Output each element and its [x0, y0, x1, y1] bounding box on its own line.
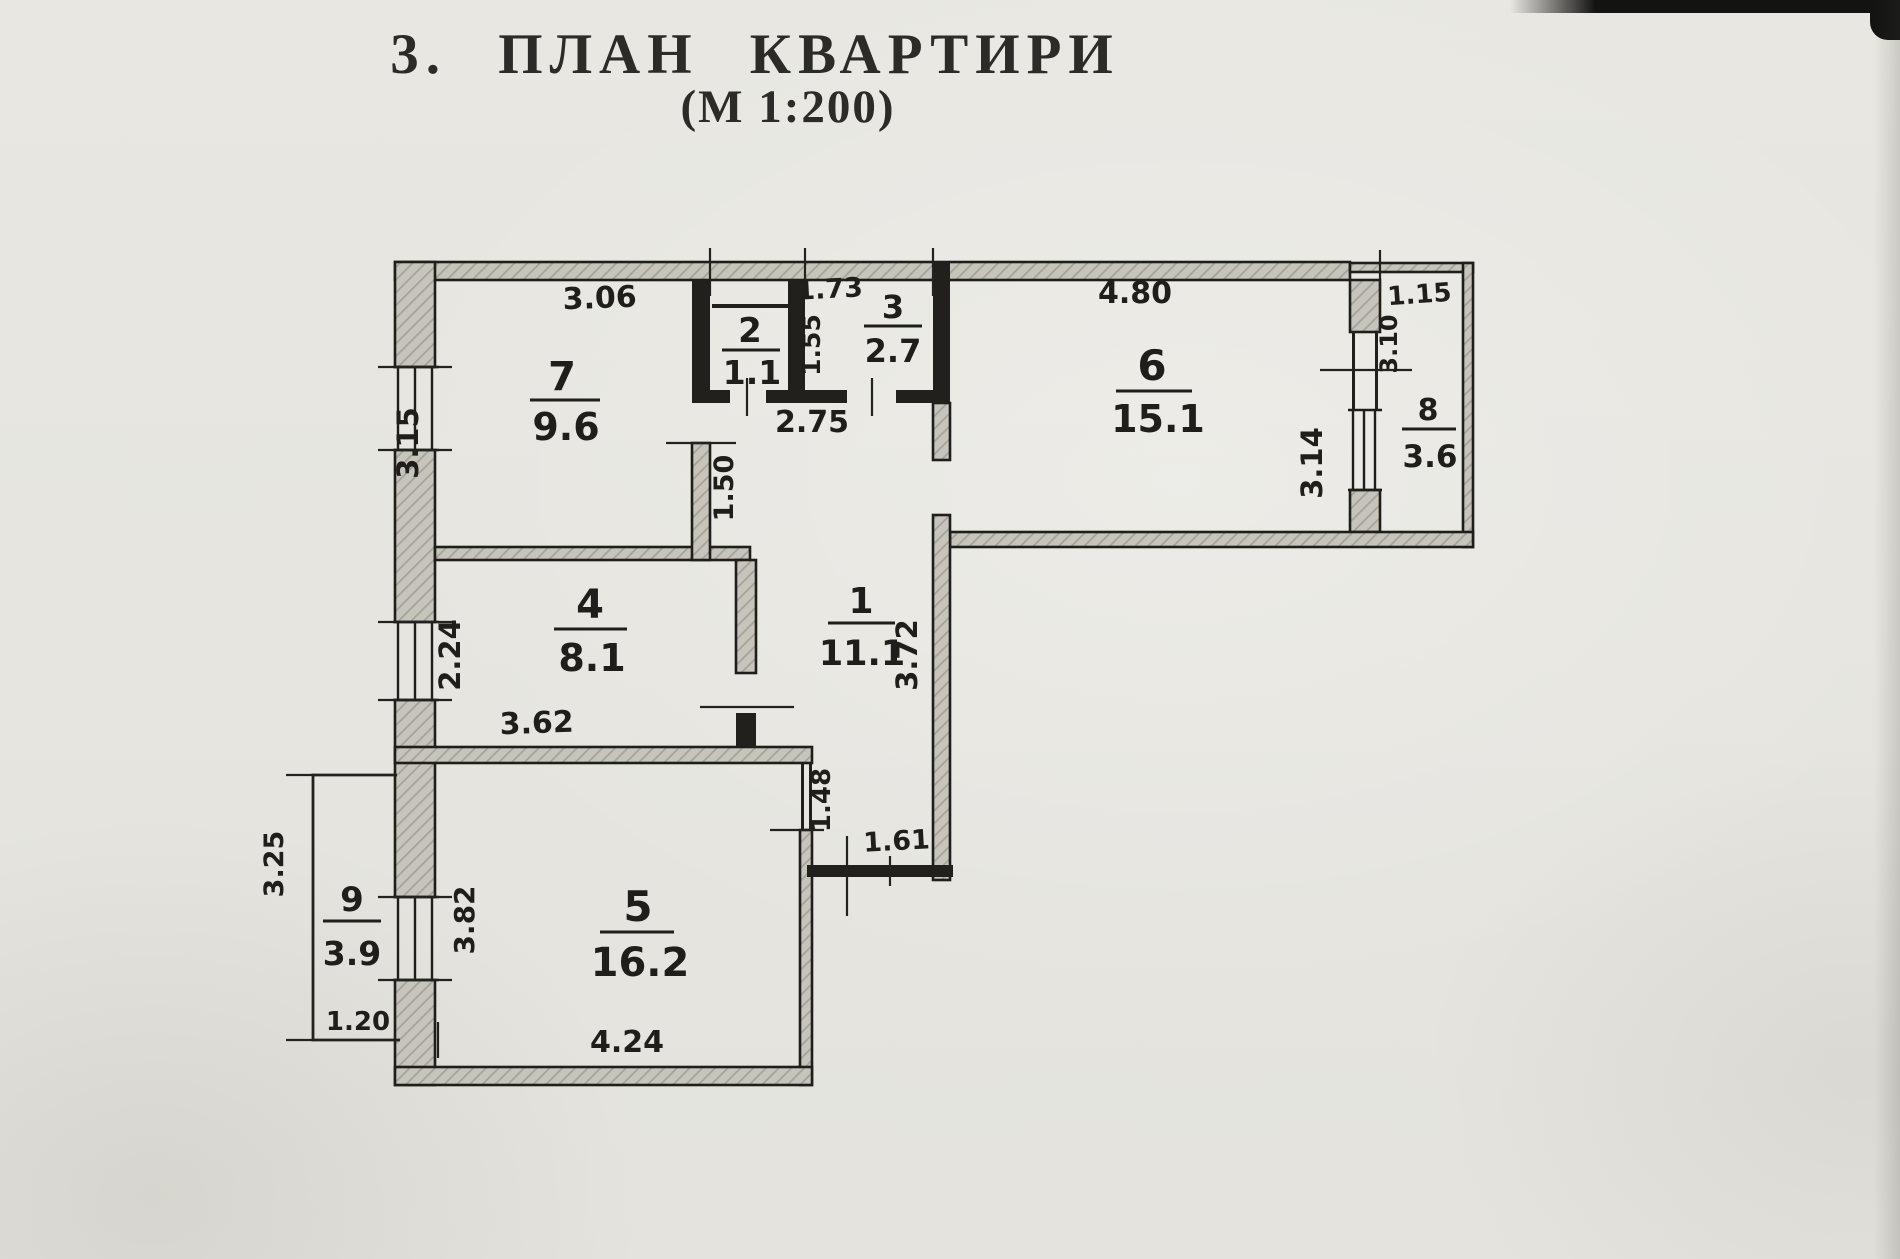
room-3-number: 3	[882, 288, 904, 326]
dim-room6-right: 3.14	[1295, 427, 1329, 499]
wall-loggia-top	[1350, 263, 1473, 272]
room5-door-jamb-left	[801, 763, 804, 830]
room-6-number: 6	[1137, 341, 1166, 390]
dim-room9-bottom: 1.20	[326, 1007, 390, 1037]
dim-room6-top: 4.80	[1098, 276, 1172, 311]
wall-left-seg3	[395, 700, 435, 897]
room-6-area: 15.1	[1111, 397, 1205, 441]
wall-hall-left-lower	[692, 443, 710, 560]
dim-hall-top: 2.75	[775, 405, 849, 440]
room-4-area: 8.1	[558, 636, 625, 680]
wall-room4-right-lower	[736, 713, 756, 747]
wall-top-main	[395, 262, 1350, 280]
wall-rooms23-bottom-c	[896, 390, 933, 403]
window-room6-loggia	[1348, 410, 1382, 490]
dim-room5-bottom: 4.24	[590, 1025, 664, 1060]
dim-room5-left: 3.82	[448, 885, 481, 954]
wall-entry-bottom	[807, 865, 953, 877]
dim-room3-top: 1.73	[795, 272, 863, 306]
wall-room6-room8-lower	[1350, 490, 1380, 532]
dim-room4-left: 2.24	[433, 619, 467, 691]
room-1-number: 1	[848, 581, 873, 622]
wall-room4-room5-divider	[395, 747, 812, 763]
room-9-area: 3.9	[323, 934, 381, 973]
floor-plan-drawing: 3.06 3.15 1.73 1.55 4.80 3.14 1.15 3.10 …	[0, 0, 1900, 1259]
dim-room4-bottom: 3.62	[499, 705, 574, 743]
wall-room6-bottom	[950, 532, 1473, 547]
wall-room5-bottom	[395, 1067, 812, 1085]
wall-room3-room6	[933, 262, 950, 403]
room-2-number: 2	[738, 311, 762, 351]
wall-corridor-right-lower	[933, 515, 950, 880]
wall-corridor-right-upper	[933, 403, 950, 460]
dim-room1-lower-left: 1.48	[807, 768, 837, 832]
room-8-area: 3.6	[1403, 439, 1458, 475]
room-9-number: 9	[340, 880, 364, 920]
wall-left-seg1	[395, 262, 435, 367]
dim-room8-left: 3.10	[1375, 314, 1403, 373]
wall-loggia-right	[1463, 263, 1473, 547]
partition-walls	[692, 262, 1378, 877]
dim-hall-left: 1.50	[709, 455, 740, 522]
wall-room4-right-upper	[736, 560, 756, 673]
wall-room7-room2	[692, 280, 710, 403]
room-5-area: 16.2	[591, 940, 690, 986]
dim-room7-left: 3.15	[391, 407, 425, 479]
room-8-number: 8	[1418, 393, 1439, 428]
room-1-area: 11.1	[819, 634, 905, 674]
scanned-floor-plan-page: 3. ПЛАН КВАРТИРИ (М 1:200)	[0, 0, 1900, 1259]
room2-shelf-line	[712, 304, 788, 308]
dim-room8-top: 1.15	[1386, 278, 1452, 312]
dim-room3-left: 1.55	[797, 314, 826, 376]
window-room5	[393, 897, 439, 980]
dim-room9-left: 3.25	[259, 831, 290, 898]
room-2-area: 1.1	[723, 353, 781, 392]
room-7-number: 7	[548, 354, 576, 400]
room-3-area: 2.7	[865, 332, 922, 370]
room-7-area: 9.6	[532, 405, 599, 449]
room-5-number: 5	[623, 882, 652, 931]
dim-room1-bottom: 1.61	[862, 824, 930, 858]
room-4-number: 4	[576, 582, 604, 628]
dim-room7-top: 3.06	[562, 280, 637, 318]
